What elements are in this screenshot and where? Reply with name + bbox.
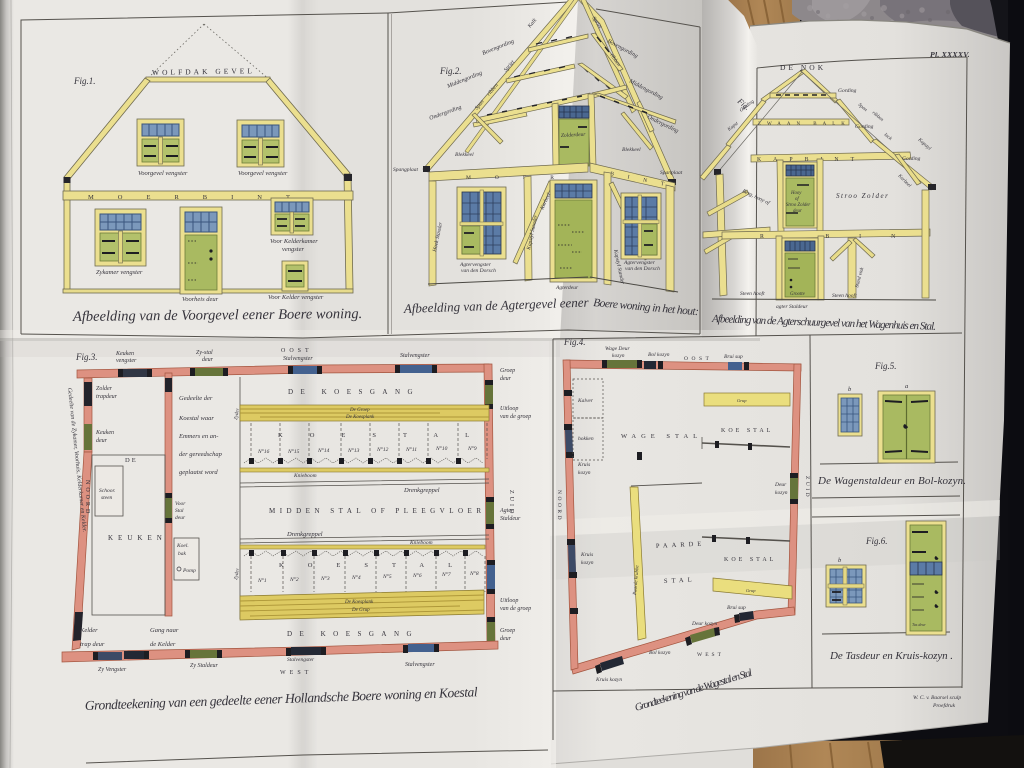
svg-text:OOST: OOST [281, 348, 313, 354]
svg-text:KOESTAL: KOESTAL [278, 432, 496, 439]
svg-text:Koestal waar: Koestal waar [178, 415, 214, 422]
svg-text:Stal: Stal [175, 508, 184, 514]
svg-text:N°6: N°6 [412, 572, 422, 579]
svg-text:kozyn: kozyn [612, 353, 625, 359]
svg-text:kozyn: kozyn [578, 470, 591, 476]
svg-text:Blekkeel: Blekkeel [455, 152, 474, 158]
svg-text:N°7: N°7 [441, 571, 451, 578]
svg-text:Keuken: Keuken [115, 351, 134, 357]
svg-text:Fig.3.: Fig.3. [75, 352, 98, 362]
svg-text:ZUID: ZUID [508, 490, 514, 516]
svg-text:Drenkgreppel: Drenkgreppel [403, 487, 440, 494]
svg-text:Fig.2.: Fig.2. [439, 66, 462, 76]
svg-text:WEST: WEST [697, 652, 724, 658]
svg-text:Koel.: Koel. [176, 543, 189, 549]
svg-text:De Grup: De Grup [351, 608, 370, 613]
svg-text:Groep: Groep [500, 368, 515, 374]
svg-text:Zy Staldeur: Zy Staldeur [190, 663, 218, 669]
svg-text:Kruis: Kruis [577, 462, 590, 468]
svg-text:ZUID: ZUID [804, 476, 810, 499]
svg-text:ZWAAN BALK: ZWAAN BALK [758, 122, 851, 127]
svg-text:Hooy: Hooy [790, 191, 802, 196]
svg-text:Gording: Gording [855, 124, 874, 130]
svg-text:Staldeur: Staldeur [500, 516, 521, 522]
svg-text:DE KOESGANG: DE KOESGANG [288, 388, 420, 396]
svg-text:Gording: Gording [902, 156, 921, 162]
svg-text:Fig.6.: Fig.6. [865, 536, 888, 546]
svg-text:Voorheis deur: Voorheis deur [182, 296, 219, 303]
svg-text:deur: deur [175, 515, 186, 521]
svg-text:geplaatst word: geplaatst word [179, 469, 218, 476]
svg-text:Zykamer vengster: Zykamer vengster [96, 269, 143, 276]
svg-text:Zy-stal: Zy-stal [196, 350, 213, 356]
svg-text:Fig.4.: Fig.4. [563, 337, 586, 347]
svg-text:Pl. XXXXV.: Pl. XXXXV. [930, 50, 970, 59]
svg-text:Grootte: Grootte [790, 292, 806, 297]
svg-text:deur: deur [500, 636, 512, 642]
svg-text:De Koesplank: De Koesplank [345, 415, 375, 420]
svg-text:deur: deur [793, 209, 802, 214]
svg-text:Blekkeel: Blekkeel [622, 147, 641, 153]
svg-text:deur: deur [500, 376, 512, 382]
svg-text:agter Staldeur: agter Staldeur [776, 304, 808, 310]
svg-text:Voor: Voor [175, 501, 186, 507]
svg-text:De Tasdeur en Kruis-kozyn .: De Tasdeur en Kruis-kozyn . [829, 650, 953, 662]
svg-text:DE KOESGANG: DE KOESGANG [287, 630, 419, 638]
svg-text:Agterdeur: Agterdeur [555, 285, 579, 291]
svg-text:W. C. v. Baarsel sculp: W. C. v. Baarsel sculp [913, 695, 961, 701]
svg-text:WEST: WEST [280, 670, 312, 676]
svg-text:KOE STAL: KOE STAL [724, 557, 776, 563]
svg-text:Wage Deur: Wage Deur [605, 346, 631, 352]
svg-text:vengster: vengster [282, 246, 304, 253]
svg-text:OOST: OOST [684, 356, 712, 362]
svg-text:deur: deur [202, 357, 214, 363]
svg-text:Zy Vengster: Zy Vengster [98, 667, 127, 673]
svg-text:Stroo Zolder: Stroo Zolder [836, 192, 889, 200]
svg-text:Kelder: Kelder [79, 627, 98, 634]
svg-text:N°10: N°10 [435, 445, 448, 452]
svg-text:Knieboom: Knieboom [293, 473, 317, 479]
svg-text:Schoor.: Schoor. [99, 488, 115, 494]
svg-text:Gang naar: Gang naar [150, 627, 179, 634]
svg-text:Voor Kelder vengster: Voor Kelder vengster [268, 294, 324, 301]
svg-text:N°9: N°9 [467, 445, 477, 452]
svg-text:trap deur: trap deur [80, 641, 105, 648]
svg-text:N°8: N°8 [469, 570, 479, 577]
svg-text:Voorgevel vengster: Voorgevel vengster [238, 170, 288, 177]
svg-text:MIDDEN STAL OF PLEEGVLOER: MIDDEN STAL OF PLEEGVLOER [269, 507, 485, 515]
svg-text:Groep: Groep [500, 628, 515, 634]
svg-text:Uitloop: Uitloop [500, 406, 518, 412]
svg-text:kozyn: kozyn [581, 560, 594, 566]
svg-text:N°4: N°4 [351, 574, 361, 581]
svg-text:Kalver: Kalver [577, 398, 594, 404]
svg-text:kozyn: kozyn [775, 490, 788, 496]
svg-text:Stroo Zolder: Stroo Zolder [786, 203, 810, 208]
svg-text:van den Dorsch: van den Dorsch [625, 266, 660, 272]
svg-text:Brui sup: Brui sup [724, 354, 743, 360]
svg-text:Stalvengster: Stalvengster [400, 353, 430, 359]
svg-text:N°3: N°3 [320, 575, 330, 582]
svg-text:Voor Kelderkamer: Voor Kelderkamer [270, 238, 318, 245]
svg-text:a: a [905, 383, 908, 390]
svg-text:Tas deur: Tas deur [912, 622, 926, 627]
svg-text:Keuken: Keuken [95, 430, 114, 436]
svg-text:Proefdruk: Proefdruk [932, 702, 956, 709]
svg-text:Zolder: Zolder [96, 386, 113, 392]
svg-text:Bol kozyn: Bol kozyn [649, 650, 671, 656]
svg-text:Emmers en an-: Emmers en an- [178, 433, 218, 440]
svg-text:Steen hooft: Steen hooft [740, 290, 765, 297]
svg-text:WOLFDAK GEVEL: WOLFDAK GEVEL [152, 66, 255, 77]
svg-text:Spangplaat: Spangplaat [393, 167, 419, 173]
svg-text:WAGE STAL: WAGE STAL [621, 433, 702, 440]
svg-text:Pomp: Pomp [182, 568, 196, 574]
svg-text:N°11: N°11 [405, 446, 417, 453]
svg-text:Spanplaat: Spanplaat [660, 170, 683, 176]
svg-text:Stalvengster: Stalvengster [405, 662, 435, 668]
svg-text:N°1: N°1 [257, 577, 267, 584]
svg-text:Kruis: Kruis [580, 552, 593, 558]
svg-text:Gording: Gording [838, 88, 857, 94]
svg-text:van de groep: van de groep [500, 414, 531, 420]
svg-text:hokken: hokken [578, 436, 594, 442]
svg-text:van den Dorsch: van den Dorsch [461, 268, 496, 274]
svg-text:Fig.1.: Fig.1. [73, 76, 96, 86]
svg-text:KOESTAL: KOESTAL [279, 562, 476, 569]
svg-text:NOORD: NOORD [556, 490, 562, 522]
svg-text:vengster: vengster [116, 358, 137, 364]
svg-text:trapdeur: trapdeur [96, 394, 118, 400]
svg-text:DE: DE [125, 457, 138, 464]
svg-text:Deur: Deur [774, 482, 787, 488]
svg-text:N°2: N°2 [289, 576, 299, 583]
svg-text:KOE STAL: KOE STAL [721, 428, 773, 434]
svg-text:deur: deur [96, 438, 108, 444]
svg-text:Uitloop: Uitloop [500, 598, 518, 604]
svg-text:Kruis kozyn: Kruis kozyn [595, 677, 622, 683]
svg-text:Grup: Grup [737, 398, 747, 403]
svg-text:De Groep: De Groep [349, 408, 370, 413]
svg-text:Drenkgreppel: Drenkgreppel [286, 531, 323, 538]
svg-text:Deur kozyn: Deur kozyn [691, 621, 717, 627]
svg-text:de Kelder: de Kelder [150, 641, 176, 648]
svg-text:Knieboom: Knieboom [409, 540, 433, 546]
svg-text:Afbeelding van de Voorgevel ee: Afbeelding van de Voorgevel eener Boere … [72, 306, 362, 325]
svg-text:N°16: N°16 [257, 448, 270, 455]
svg-text:N°15: N°15 [287, 448, 300, 455]
svg-text:Steen hooft: Steen hooft [832, 292, 857, 299]
svg-text:van de groep: van de groep [500, 606, 531, 612]
svg-text:Fig.5.: Fig.5. [874, 361, 897, 371]
svg-text:Stalvengster: Stalvengster [283, 356, 313, 362]
svg-text:der gereedschap: der gereedschap [179, 451, 223, 458]
svg-text:KEUKEN: KEUKEN [108, 534, 167, 542]
svg-text:Bol kozyn: Bol kozyn [648, 352, 670, 358]
svg-text:bak: bak [178, 551, 187, 557]
svg-text:Voorgevel vengster: Voorgevel vengster [138, 170, 188, 177]
svg-text:N°14: N°14 [317, 447, 330, 454]
svg-text:Stalvengster: Stalvengster [287, 657, 315, 663]
svg-text:Grup: Grup [746, 588, 756, 593]
svg-text:steen: steen [101, 495, 113, 501]
svg-text:Gedeelte der: Gedeelte der [179, 395, 213, 402]
svg-text:De Koesplank: De Koesplank [344, 600, 374, 605]
svg-text:N°5: N°5 [382, 573, 392, 580]
svg-text:NOORD: NOORD [84, 480, 90, 516]
svg-text:N°12: N°12 [376, 446, 389, 453]
svg-text:N°13: N°13 [347, 447, 360, 454]
svg-text:Brui sup: Brui sup [727, 605, 746, 611]
svg-text:De Wagenstaldeur en Bol-kozyn.: De Wagenstaldeur en Bol-kozyn. [817, 475, 966, 487]
